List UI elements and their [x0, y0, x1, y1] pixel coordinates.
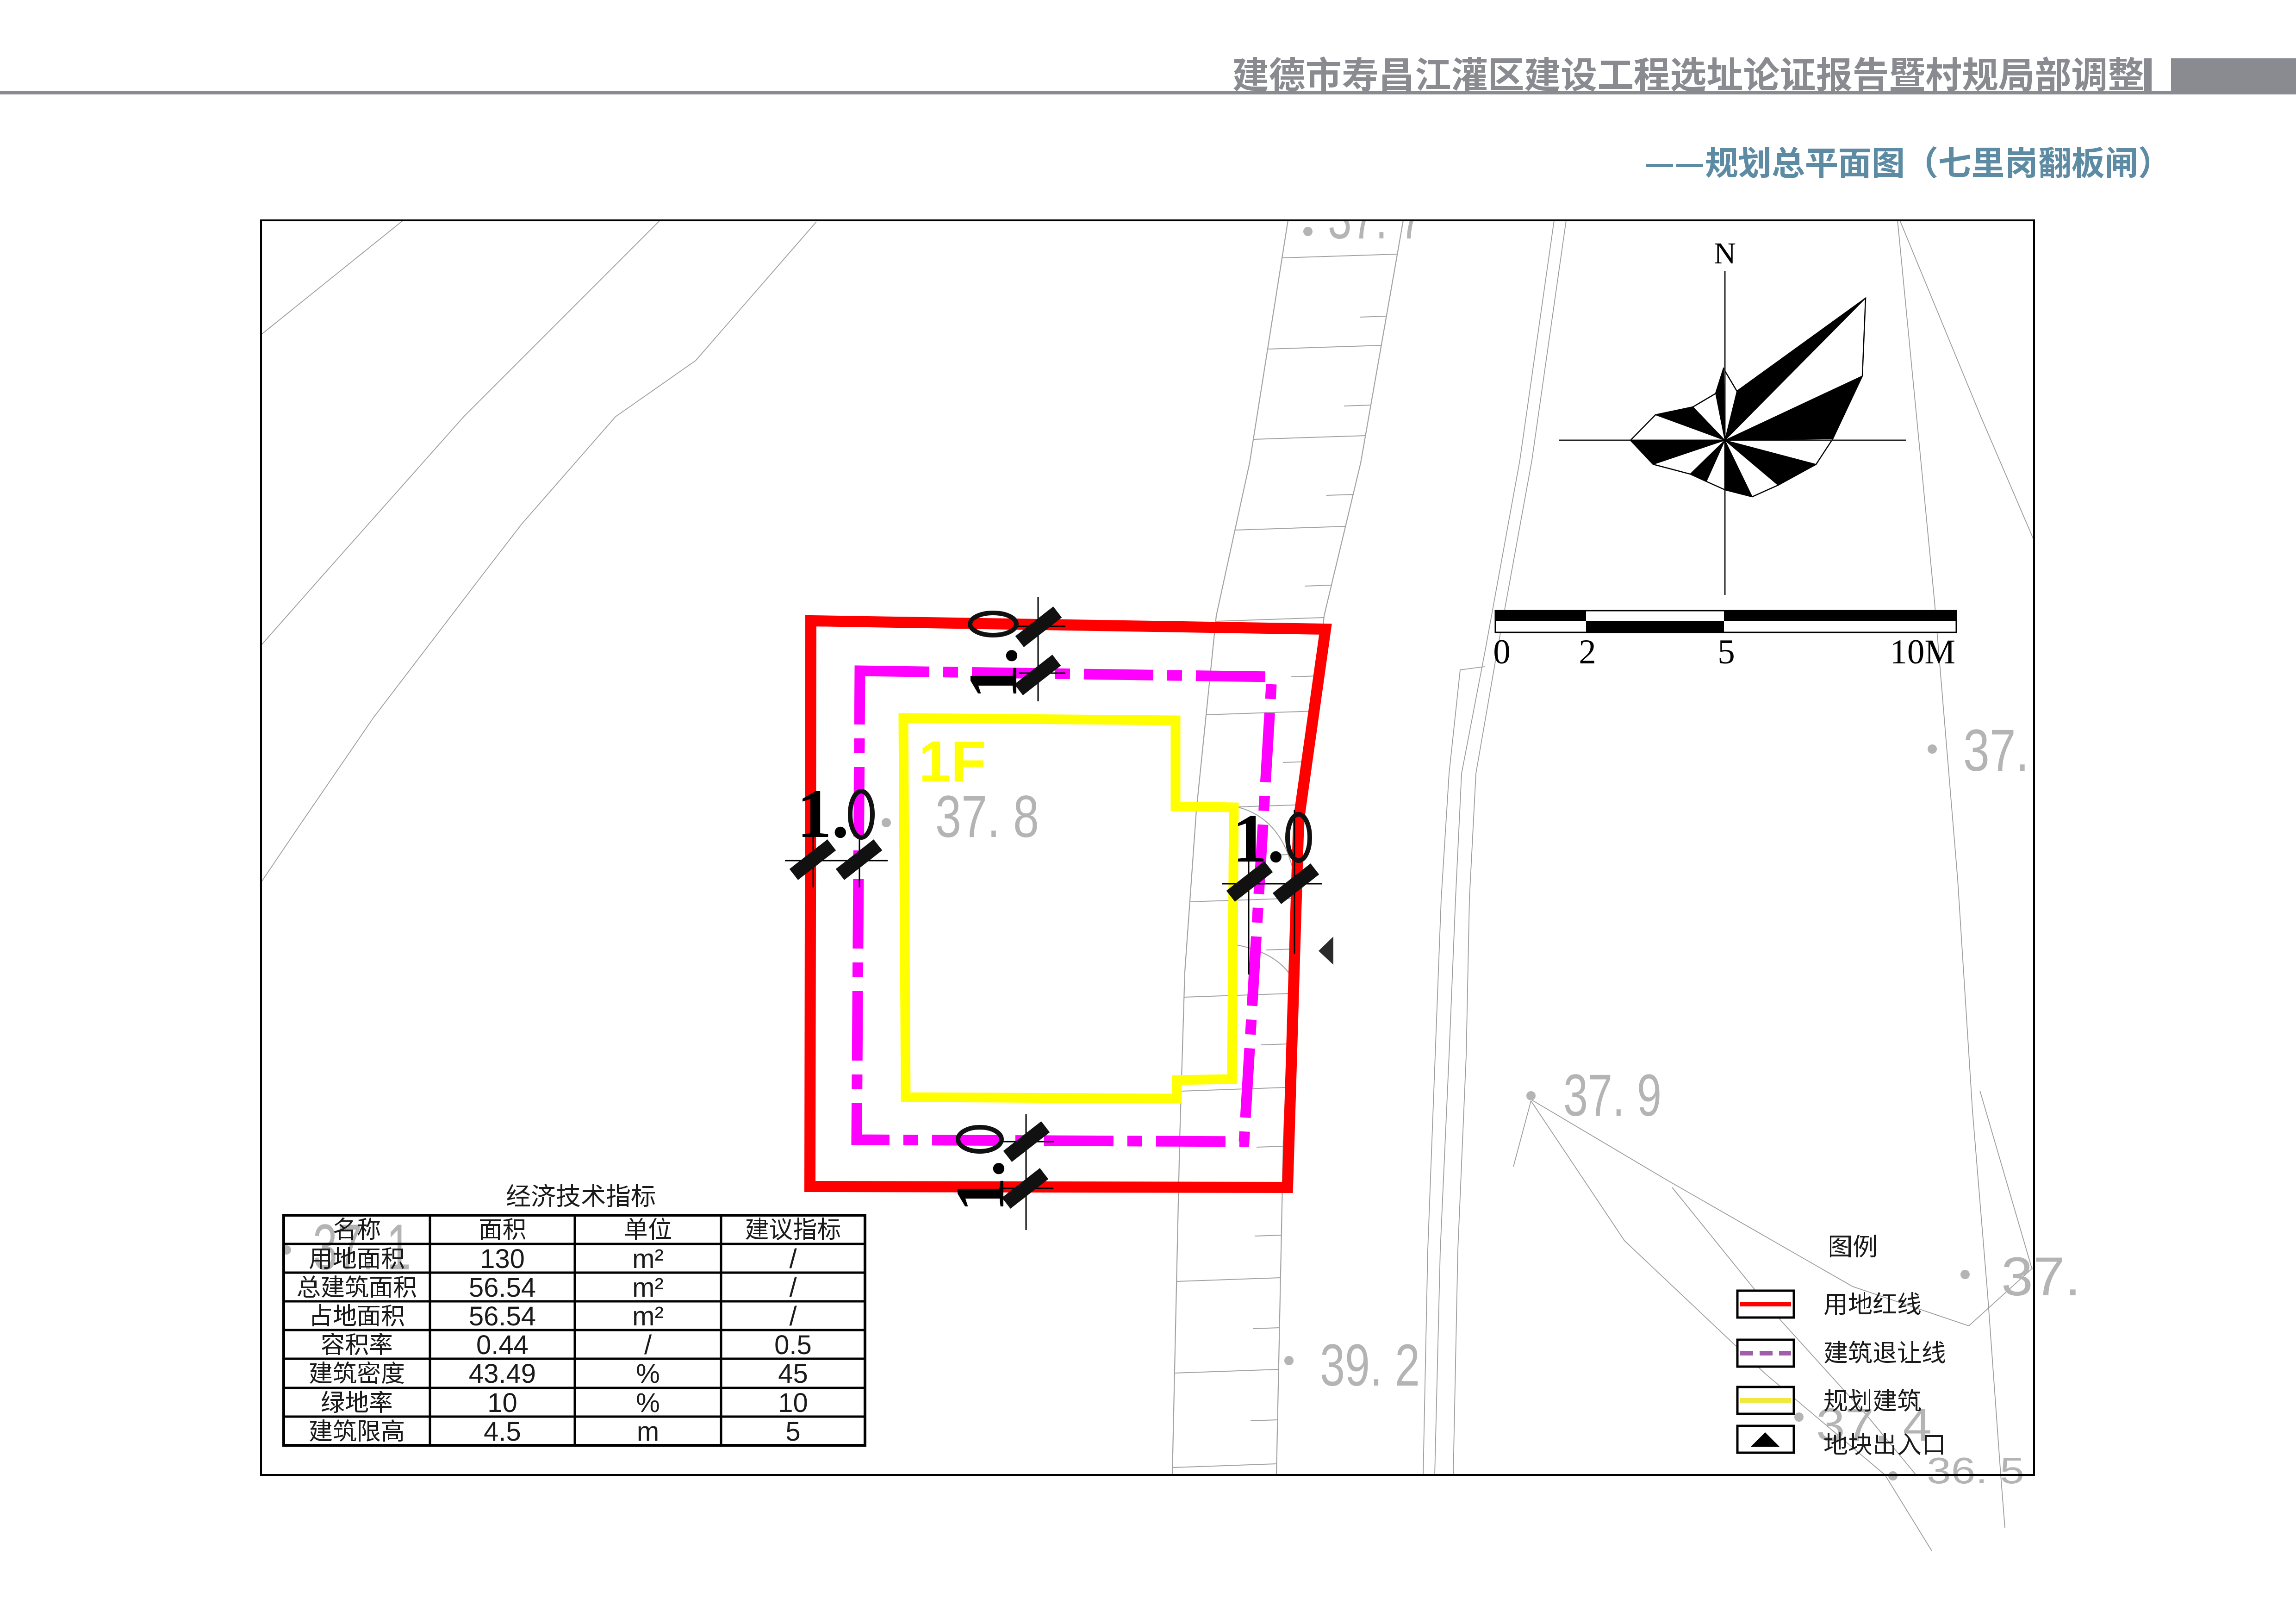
svg-text:39. 2: 39. 2: [1320, 1332, 1420, 1399]
svg-text:130: 130: [480, 1244, 525, 1274]
svg-text:%: %: [636, 1359, 660, 1389]
svg-text:43.49: 43.49: [469, 1359, 536, 1389]
svg-text:37.: 37.: [1963, 718, 2029, 784]
svg-text:10: 10: [487, 1388, 517, 1418]
svg-text:0.5: 0.5: [774, 1330, 812, 1360]
svg-text:5: 5: [1717, 633, 1735, 671]
svg-text:56.54: 56.54: [469, 1301, 536, 1331]
svg-text:1.: 1.: [942, 1160, 1019, 1212]
svg-text:m: m: [637, 1417, 659, 1447]
svg-text:56.54: 56.54: [469, 1273, 536, 1303]
svg-text:0.44: 0.44: [476, 1330, 529, 1360]
svg-text:4.5: 4.5: [484, 1417, 521, 1447]
svg-text:m²: m²: [632, 1244, 664, 1274]
svg-text:1.: 1.: [797, 775, 849, 852]
svg-text:37. 9: 37. 9: [1563, 1062, 1661, 1129]
svg-text:/: /: [644, 1330, 652, 1360]
svg-text:45: 45: [778, 1359, 808, 1389]
svg-text:m²: m²: [632, 1273, 664, 1303]
svg-text:/: /: [789, 1244, 797, 1274]
svg-text:36. 5: 36. 5: [1927, 1450, 2024, 1491]
svg-text:10M: 10M: [1890, 633, 1955, 671]
svg-text:/: /: [789, 1301, 797, 1331]
svg-text:0: 0: [1493, 633, 1511, 671]
svg-text:10: 10: [778, 1388, 808, 1418]
svg-text:1F: 1F: [919, 730, 986, 794]
svg-text:%: %: [636, 1388, 660, 1418]
svg-text:/: /: [789, 1273, 797, 1303]
svg-text:37.: 37.: [2001, 1246, 2081, 1307]
svg-text:1.: 1.: [1232, 800, 1285, 877]
svg-text:1.: 1.: [955, 647, 1032, 700]
svg-text:N: N: [1714, 237, 1736, 270]
svg-text:m²: m²: [632, 1301, 664, 1331]
svg-text:2: 2: [1579, 633, 1596, 671]
svg-text:5: 5: [785, 1417, 800, 1447]
